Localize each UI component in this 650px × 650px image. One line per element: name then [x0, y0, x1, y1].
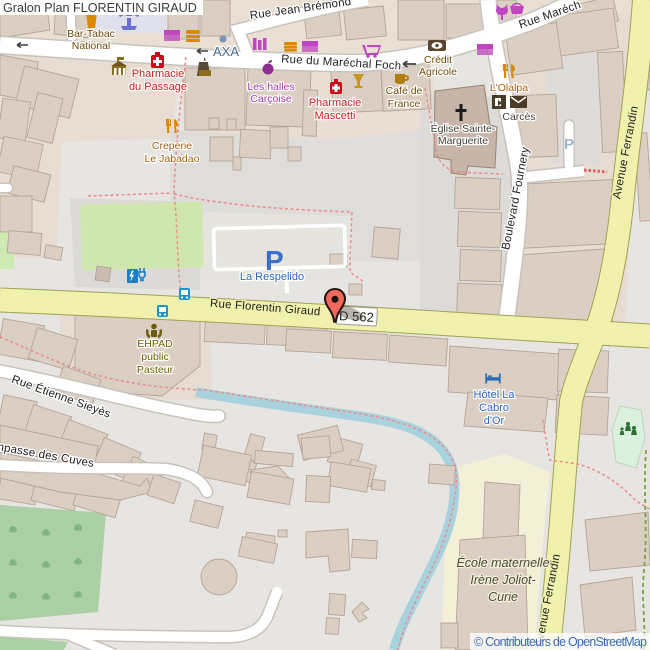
svg-text:Mascetti: Mascetti	[315, 110, 356, 122]
svg-text:Carçoise: Carçoise	[250, 93, 292, 105]
svg-text:Agricole: Agricole	[419, 66, 457, 78]
svg-text:École maternelle: École maternelle	[456, 555, 549, 570]
svg-text:AXA: AXA	[213, 44, 239, 59]
svg-text:Bar-Tabac: Bar-Tabac	[67, 28, 115, 40]
svg-text:France: France	[388, 98, 421, 110]
svg-text:Marguerite: Marguerite	[438, 135, 488, 147]
svg-text:Café de: Café de	[386, 85, 423, 97]
svg-text:Pharmacie: Pharmacie	[309, 97, 362, 109]
svg-text:Pasteur: Pasteur	[137, 364, 174, 376]
svg-text:National: National	[72, 40, 111, 52]
svg-text:Hôtel La: Hôtel La	[474, 389, 516, 401]
svg-text:L'Olalpa: L'Olalpa	[490, 82, 528, 94]
svg-text:Le Jabadao: Le Jabadao	[145, 153, 200, 165]
svg-text:Irène Joliot-: Irène Joliot-	[470, 573, 535, 587]
svg-text:P: P	[564, 136, 574, 153]
svg-text:Carcès: Carcès	[502, 111, 535, 123]
svg-text:du Passage: du Passage	[129, 81, 187, 93]
svg-text:EHPAD: EHPAD	[137, 338, 173, 350]
svg-text:Crédit: Crédit	[424, 54, 452, 66]
svg-text:d'Or: d'Or	[484, 415, 505, 427]
svg-text:Cabro: Cabro	[479, 402, 509, 414]
svg-text:© Contributeurs de OpenStreetM: © Contributeurs de OpenStreetMap	[474, 635, 647, 649]
svg-text:Curie: Curie	[488, 590, 518, 604]
svg-text:Gralon Plan FLORENTIN GIRAUD: Gralon Plan FLORENTIN GIRAUD	[3, 1, 197, 15]
svg-text:Pharmacie: Pharmacie	[132, 68, 185, 80]
svg-text:Les halles: Les halles	[247, 81, 294, 93]
svg-text:Église Sainte-: Église Sainte-	[431, 122, 496, 135]
svg-text:La Respelido: La Respelido	[240, 271, 304, 283]
svg-text:public: public	[141, 351, 168, 363]
svg-text:Creperie: Creperie	[152, 140, 192, 152]
